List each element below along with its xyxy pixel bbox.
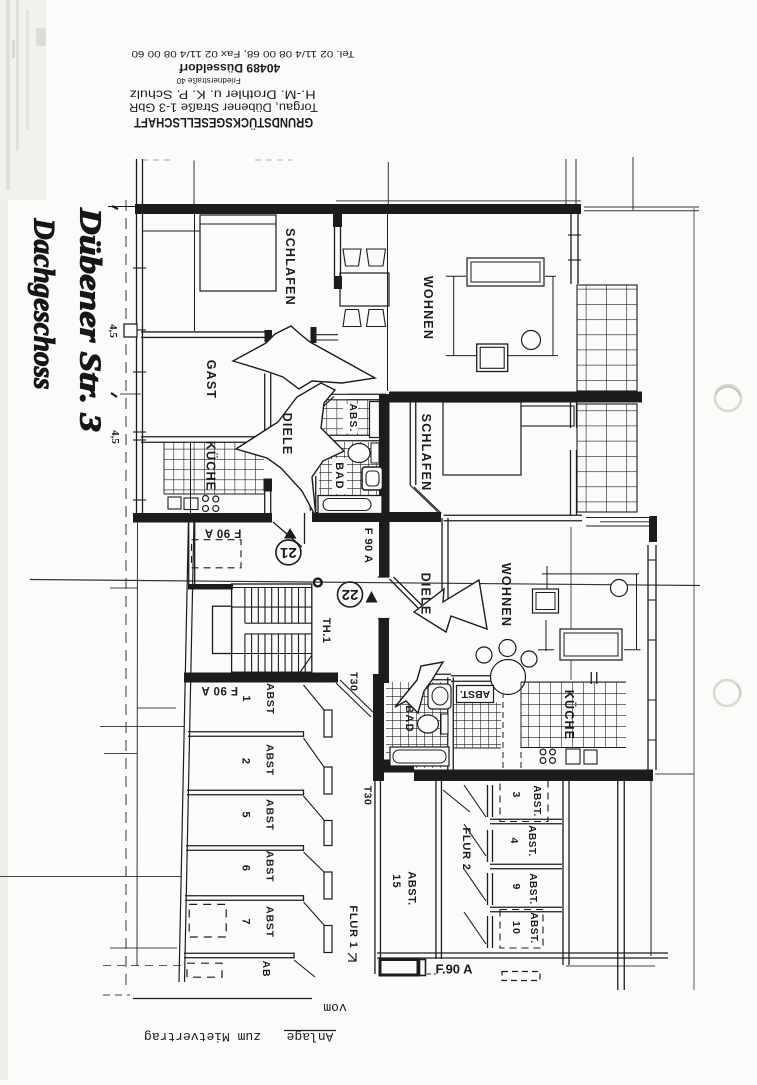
- svg-text:zum Mietvertrag: zum Mietvertrag: [144, 1029, 261, 1044]
- svg-text:WOHNEN: WOHNEN: [421, 276, 435, 340]
- svg-text:FLUR 1: FLUR 1: [347, 905, 359, 948]
- svg-text:15: 15: [390, 874, 402, 889]
- svg-text:ABST.: ABST.: [527, 873, 538, 904]
- svg-text:TH.1: TH.1: [320, 618, 332, 644]
- svg-text:4,5: 4,5: [109, 430, 121, 444]
- svg-text:SCHLAFEN: SCHLAFEN: [419, 414, 433, 492]
- svg-text:ABST.: ABST.: [528, 912, 539, 943]
- svg-text:40489 Düsseldorf: 40489 Düsseldorf: [179, 61, 280, 73]
- svg-text:ABST: ABST: [264, 906, 276, 938]
- svg-text:Anlage: Anlage: [287, 1029, 334, 1044]
- svg-text:9: 9: [510, 883, 522, 890]
- svg-text:ABST.: ABST.: [406, 871, 418, 905]
- svg-text:Friednerstraße 40: Friednerstraße 40: [176, 76, 241, 85]
- svg-text:ABST.: ABST.: [531, 785, 542, 816]
- svg-text:ABST.: ABST.: [526, 825, 537, 856]
- svg-text:3: 3: [510, 791, 522, 798]
- svg-text:ABST: ABST: [264, 744, 276, 776]
- svg-text:ABS.: ABS.: [347, 404, 358, 433]
- svg-text:DIELE: DIELE: [280, 413, 294, 456]
- svg-text:ABST.: ABST.: [460, 688, 490, 700]
- svg-text:7: 7: [240, 918, 252, 925]
- svg-text:GRUNDSTÜCKSGESELLSCHAFT: GRUNDSTÜCKSGESELLSCHAFT: [133, 115, 313, 130]
- svg-text:4,5: 4,5: [107, 324, 119, 338]
- svg-text:ABST: ABST: [264, 799, 276, 831]
- svg-text:vom: vom: [323, 1000, 347, 1015]
- svg-text:Tel. 02 11/4 08 00 68, Fax 02: Tel. 02 11/4 08 00 68, Fax 02 11/4 08 00…: [132, 48, 355, 59]
- svg-text:2: 2: [240, 758, 252, 765]
- svg-text:SCHLAFEN: SCHLAFEN: [283, 228, 297, 306]
- svg-text:F 90 A: F 90 A: [362, 528, 374, 564]
- svg-text:Torgau, Dübener Straße 1-3 GbR: Torgau, Dübener Straße 1-3 GbR: [129, 101, 318, 115]
- svg-text:Dachgeschoss: Dachgeschoss: [28, 218, 61, 390]
- svg-text:T30: T30: [362, 786, 374, 806]
- svg-text:F.90 A: F.90 A: [435, 962, 473, 977]
- svg-text:DIELE: DIELE: [419, 573, 433, 616]
- svg-text:ABST: ABST: [264, 683, 276, 715]
- svg-text:22: 22: [342, 586, 359, 603]
- svg-text:AB: AB: [260, 961, 272, 978]
- svg-text:F 90 A: F 90 A: [204, 527, 241, 539]
- svg-text:ABST: ABST: [264, 851, 276, 883]
- svg-text:KÜCHE: KÜCHE: [204, 441, 219, 491]
- svg-text:21: 21: [280, 544, 297, 561]
- svg-text:Dübener Str. 3: Dübener Str. 3: [74, 207, 109, 432]
- svg-text:WOHNEN: WOHNEN: [499, 563, 513, 627]
- svg-text:1: 1: [240, 695, 252, 702]
- svg-text:GAST: GAST: [204, 360, 218, 400]
- svg-text:F 90 A: F 90 A: [201, 684, 238, 696]
- svg-text:10: 10: [510, 921, 522, 935]
- svg-text:FLUR 2: FLUR 2: [460, 827, 472, 870]
- svg-text:4: 4: [508, 837, 520, 844]
- svg-text:6: 6: [240, 865, 252, 872]
- svg-text:BAD: BAD: [333, 462, 345, 489]
- svg-text:H.-M. Drothler u. K. P. Schulz: H.-M. Drothler u. K. P. Schulz: [130, 88, 316, 102]
- svg-text:5: 5: [240, 811, 252, 818]
